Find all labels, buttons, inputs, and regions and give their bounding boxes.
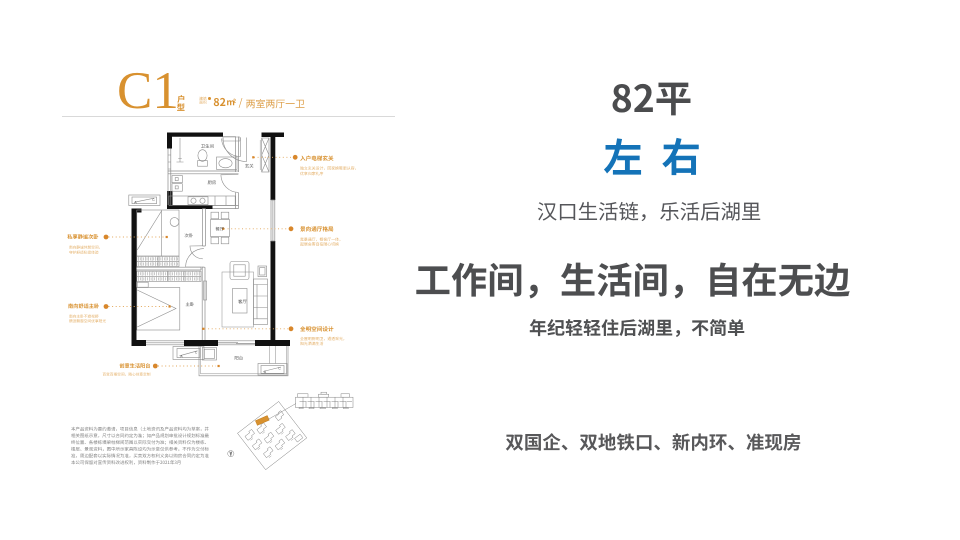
svg-text:C: C — [278, 367, 281, 371]
svg-text:C: C — [152, 198, 155, 202]
svg-text:C: C — [195, 351, 198, 355]
